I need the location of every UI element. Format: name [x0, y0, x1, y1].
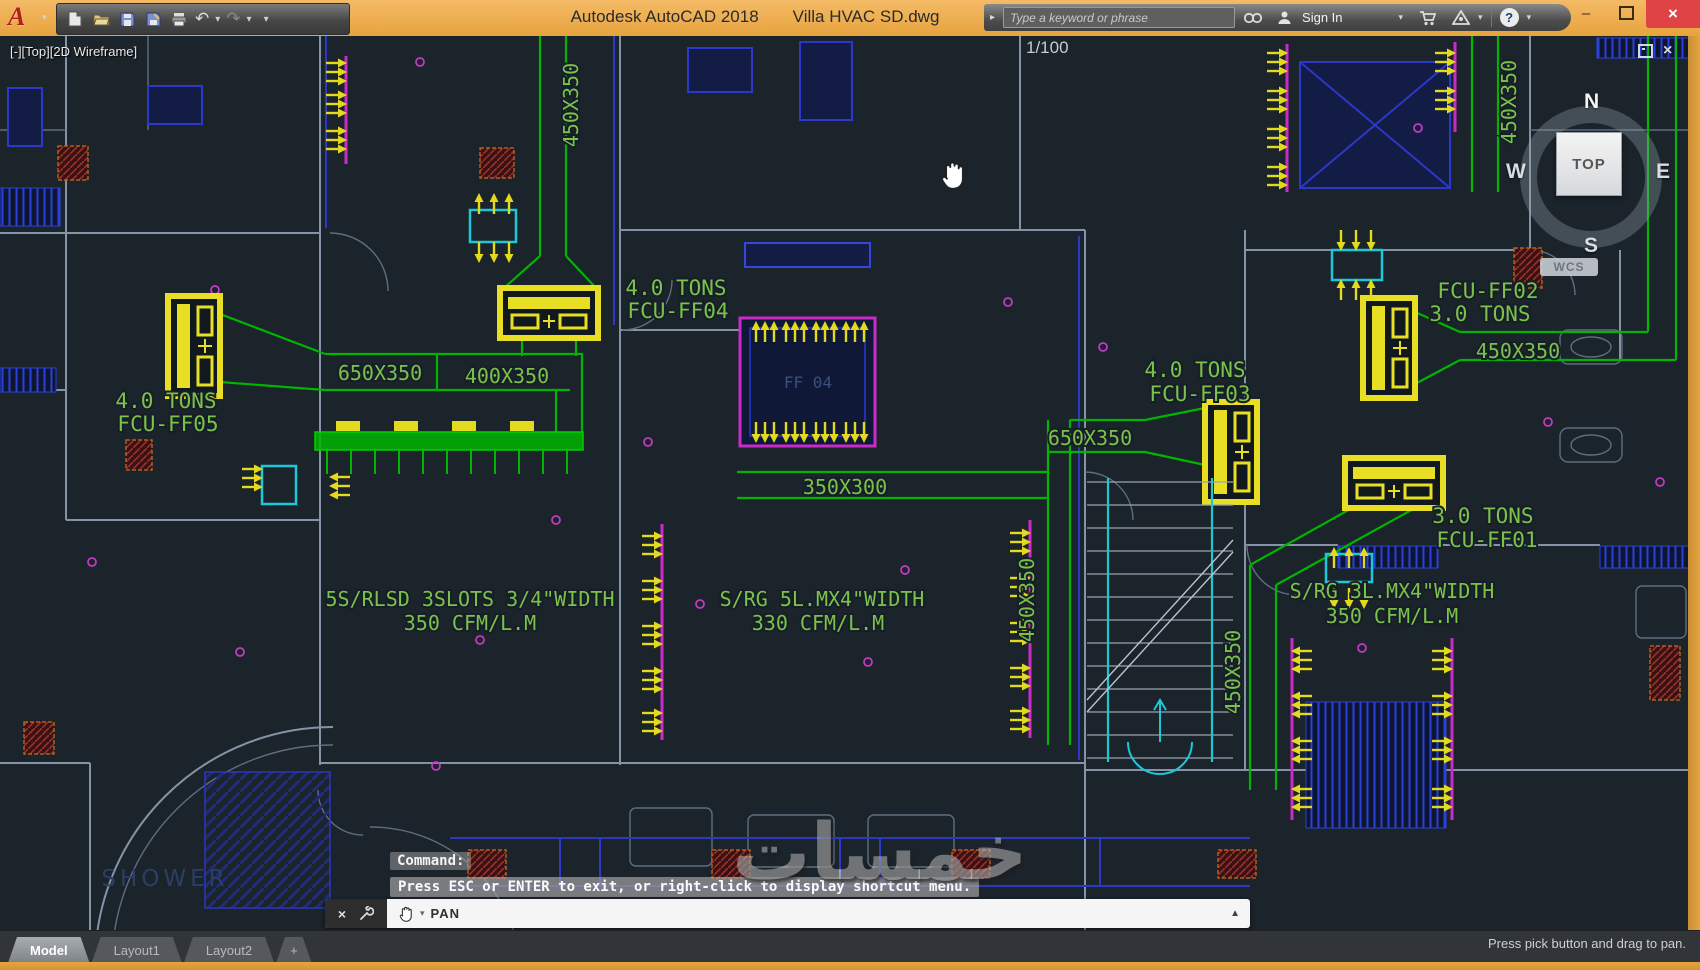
- label-srg3-2: 350 CFM/L.M: [1326, 604, 1458, 628]
- a360-icon[interactable]: [1452, 10, 1470, 25]
- layout-tab-bar: Model Layout1 Layout2 +: [0, 930, 1700, 963]
- command-prompt: Command:: [390, 852, 471, 870]
- window-frame-bottom: [0, 962, 1700, 970]
- help-icon[interactable]: ?: [1500, 8, 1519, 27]
- app-store-cart-icon[interactable]: [1419, 10, 1438, 26]
- label-450x350-mid: 450X350: [1015, 558, 1039, 642]
- window-title: Autodesk AutoCAD 2018Villa HVAC SD.dwg: [571, 7, 940, 27]
- close-drawing-icon[interactable]: ×: [1663, 44, 1672, 58]
- tab-layout1[interactable]: Layout1: [92, 937, 182, 963]
- save-as-icon[interactable]: [143, 9, 163, 29]
- viewcube-top-face[interactable]: TOP: [1556, 132, 1622, 196]
- search-collapse-icon[interactable]: ▸: [990, 12, 995, 23]
- label-650x350-left: 650X350: [338, 361, 422, 385]
- command-bar[interactable]: × ▾ PAN ▲: [325, 899, 1250, 928]
- document-title: Villa HVAC SD.dwg: [793, 7, 940, 26]
- label-450x350-ff01: 450X350: [1221, 630, 1245, 714]
- label-450x350-top: 450X350: [559, 63, 583, 147]
- autocad-window: 450X350 4.0 TONS FCU-FF04 650X350 400X35…: [0, 0, 1700, 970]
- label-ff05-name: FCU-FF05: [117, 412, 218, 436]
- label-350x300: 350X300: [803, 475, 887, 499]
- label-ff01-name: FCU-FF01: [1436, 528, 1537, 552]
- redo-caret-icon[interactable]: ▾: [247, 14, 252, 25]
- restore-drawing-icon[interactable]: [1638, 44, 1653, 58]
- qat-customize-caret-icon[interactable]: ▾: [264, 14, 269, 25]
- bed-x-brace: [1300, 62, 1450, 188]
- command-input[interactable]: ▾ PAN: [387, 905, 1230, 923]
- viewcube-west[interactable]: W: [1506, 160, 1526, 184]
- window-controls: – ×: [1566, 0, 1700, 32]
- close-button[interactable]: ×: [1646, 0, 1700, 28]
- viewcube-south[interactable]: S: [1584, 234, 1598, 258]
- undo-icon[interactable]: ↶: [195, 9, 209, 29]
- search-input[interactable]: [1003, 7, 1235, 28]
- minimize-button[interactable]: –: [1566, 0, 1606, 26]
- fcu-ff02-unit: [1363, 298, 1415, 398]
- command-history-caret-icon[interactable]: ▲: [1230, 908, 1240, 919]
- label-ff03-tons: 4.0 TONS: [1144, 358, 1245, 382]
- tab-layout2[interactable]: Layout2: [184, 937, 274, 963]
- window-frame-right: [1688, 36, 1700, 962]
- command-close-icon[interactable]: ×: [338, 906, 346, 922]
- maximize-button[interactable]: [1606, 0, 1646, 26]
- tab-model[interactable]: Model: [8, 937, 90, 963]
- new-file-icon[interactable]: [65, 9, 85, 29]
- sign-in-button[interactable]: Sign In: [1302, 10, 1342, 25]
- fcu-ff04-unit: [500, 288, 598, 338]
- label-srg3-1: S/RG 3L.MX4"WIDTH: [1290, 579, 1495, 603]
- viewport-controls[interactable]: [-][Top][2D Wireframe]: [10, 44, 137, 59]
- label-slot-diffuser-1: 5S/RLSD 3SLOTS 3/4"WIDTH: [326, 587, 615, 611]
- a360-caret-icon[interactable]: ▾: [1478, 12, 1483, 23]
- app-menu-caret-icon[interactable]: ▾: [42, 12, 47, 23]
- command-options-caret-icon[interactable]: ▾: [420, 908, 425, 919]
- wcs-badge[interactable]: WCS: [1540, 258, 1598, 276]
- user-icon[interactable]: [1277, 10, 1292, 25]
- viewcube-east[interactable]: E: [1656, 160, 1670, 184]
- label-ff05-tons: 4.0 TONS: [115, 389, 216, 413]
- label-ff04-tons: 4.0 TONS: [625, 276, 726, 300]
- annotation-scale: 1/100: [1026, 38, 1069, 58]
- label-srg5-1: S/RG 5L.MX4"WIDTH: [720, 587, 925, 611]
- label-450x350-right: 450X350: [1476, 339, 1560, 363]
- label-shower: SHOWER: [101, 866, 228, 892]
- label-ff02-name: FCU-FF02: [1437, 279, 1538, 303]
- label-ff02-tons: 3.0 TONS: [1429, 302, 1530, 326]
- viewcube-north[interactable]: N: [1584, 90, 1599, 114]
- tab-add-layout[interactable]: +: [276, 937, 312, 963]
- save-icon[interactable]: [117, 9, 137, 29]
- app-title: Autodesk AutoCAD 2018: [571, 7, 759, 26]
- undo-caret-icon[interactable]: ▾: [215, 14, 220, 25]
- viewcube[interactable]: N W E S TOP: [1516, 88, 1666, 258]
- title-bar: A ▾ ↶ ▾ ↷ ▾ ▾ Autodesk AutoC: [0, 0, 1700, 36]
- label-srg5-2: 330 CFM/L.M: [752, 611, 884, 635]
- fcu-ff05-unit: [168, 296, 220, 396]
- label-ff04-name: FCU-FF04: [627, 299, 728, 323]
- open-file-icon[interactable]: [91, 9, 111, 29]
- label-ff01-tons: 3.0 TONS: [1432, 504, 1533, 528]
- fcu-ff01-unit: [1345, 458, 1443, 508]
- search-icon[interactable]: [1243, 11, 1263, 25]
- help-caret-icon[interactable]: ▾: [1527, 12, 1532, 23]
- active-command-label: PAN: [431, 906, 460, 921]
- infocenter: ▸ Sign In ▾ ▾ ? ▾: [984, 4, 1571, 31]
- maximize-icon: [1619, 6, 1634, 20]
- label-400x350: 400X350: [465, 364, 549, 388]
- khamsat-watermark: خمسات: [660, 808, 1100, 898]
- plot-icon[interactable]: [169, 9, 189, 29]
- label-slot-diffuser-2: 350 CFM/L.M: [404, 611, 536, 635]
- pan-command-icon: [397, 905, 414, 923]
- sign-in-caret-icon[interactable]: ▾: [1399, 12, 1404, 23]
- pan-hand-cursor: [936, 158, 968, 192]
- quick-access-toolbar: ↶ ▾ ↷ ▾ ▾: [56, 3, 350, 35]
- label-room-ff04: FF 04: [784, 373, 832, 392]
- label-ff03-name: FCU-FF03: [1149, 382, 1250, 406]
- autocad-logo-icon[interactable]: A: [8, 2, 38, 32]
- customize-wrench-icon[interactable]: [358, 906, 374, 922]
- label-650x350-right: 650X350: [1048, 426, 1132, 450]
- redo-icon[interactable]: ↷: [226, 9, 240, 29]
- status-bar-message: Press pick button and drag to pan.: [1488, 936, 1686, 951]
